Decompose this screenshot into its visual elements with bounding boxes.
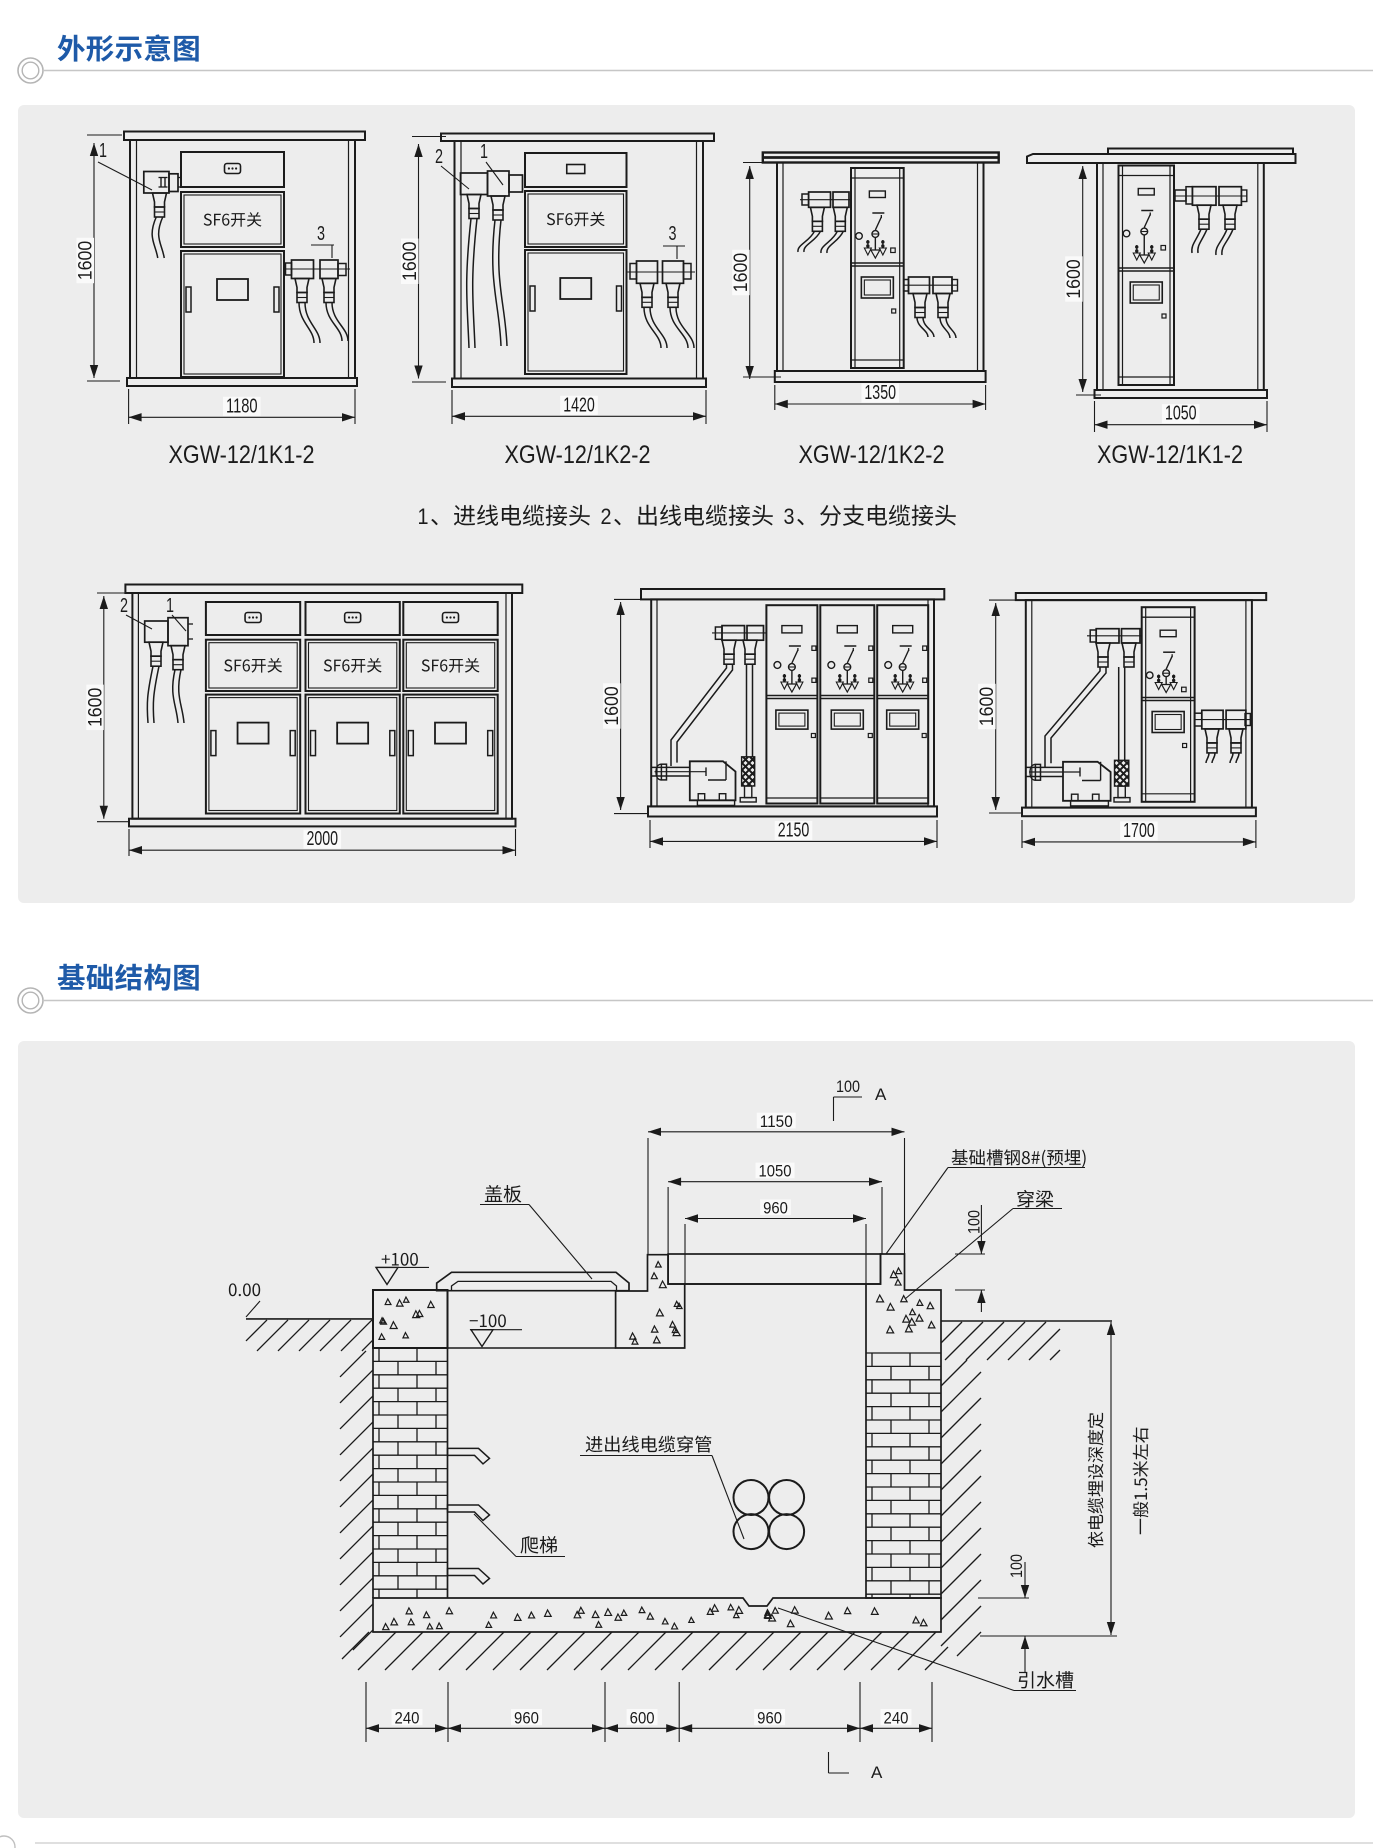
svg-text:1: 1 <box>418 504 429 529</box>
svg-text:100: 100 <box>965 1210 984 1234</box>
svg-text:1700: 1700 <box>1123 820 1155 842</box>
svg-text:240: 240 <box>395 1708 420 1727</box>
svg-text:3: 3 <box>784 504 795 529</box>
svg-text:960: 960 <box>763 1200 788 1218</box>
svg-text:2: 2 <box>120 595 128 617</box>
svg-text:1350: 1350 <box>864 382 896 404</box>
svg-text:1: 1 <box>166 595 174 617</box>
svg-text:1600: 1600 <box>602 686 623 725</box>
svg-text:1050: 1050 <box>759 1163 792 1181</box>
svg-text:2: 2 <box>435 146 443 168</box>
svg-text:2: 2 <box>601 504 612 529</box>
svg-text:1600: 1600 <box>400 242 421 281</box>
svg-text:XGW-12/1K2-2: XGW-12/1K2-2 <box>505 441 651 469</box>
svg-text:1: 1 <box>480 141 488 163</box>
svg-text:A: A <box>871 1763 883 1782</box>
svg-text:XGW-12/1K1-2: XGW-12/1K1-2 <box>1097 441 1243 469</box>
svg-text:1600: 1600 <box>731 253 752 292</box>
svg-text:100: 100 <box>1007 1554 1026 1578</box>
svg-text:3: 3 <box>669 223 677 245</box>
svg-text:A: A <box>875 1085 887 1104</box>
svg-text:240: 240 <box>884 1708 909 1727</box>
svg-text:960: 960 <box>757 1708 782 1727</box>
svg-text:3: 3 <box>317 223 325 245</box>
svg-text:1600: 1600 <box>85 688 106 727</box>
svg-text:XGW-12/1K1-2: XGW-12/1K1-2 <box>169 441 315 469</box>
svg-text:1050: 1050 <box>1165 403 1197 425</box>
svg-text:XGW-12/1K2-2: XGW-12/1K2-2 <box>799 441 945 469</box>
svg-text:2000: 2000 <box>306 828 338 850</box>
svg-text:1180: 1180 <box>226 395 258 417</box>
svg-text:960: 960 <box>514 1708 539 1727</box>
svg-text:1600: 1600 <box>1064 259 1085 298</box>
svg-text:1420: 1420 <box>563 394 595 416</box>
svg-text:1: 1 <box>99 140 107 162</box>
svg-text:1600: 1600 <box>76 241 97 280</box>
svg-text:100: 100 <box>836 1077 860 1096</box>
svg-text:1150: 1150 <box>760 1113 793 1131</box>
svg-text:2150: 2150 <box>778 819 810 841</box>
svg-text:600: 600 <box>630 1708 655 1727</box>
svg-text:1600: 1600 <box>977 687 998 726</box>
